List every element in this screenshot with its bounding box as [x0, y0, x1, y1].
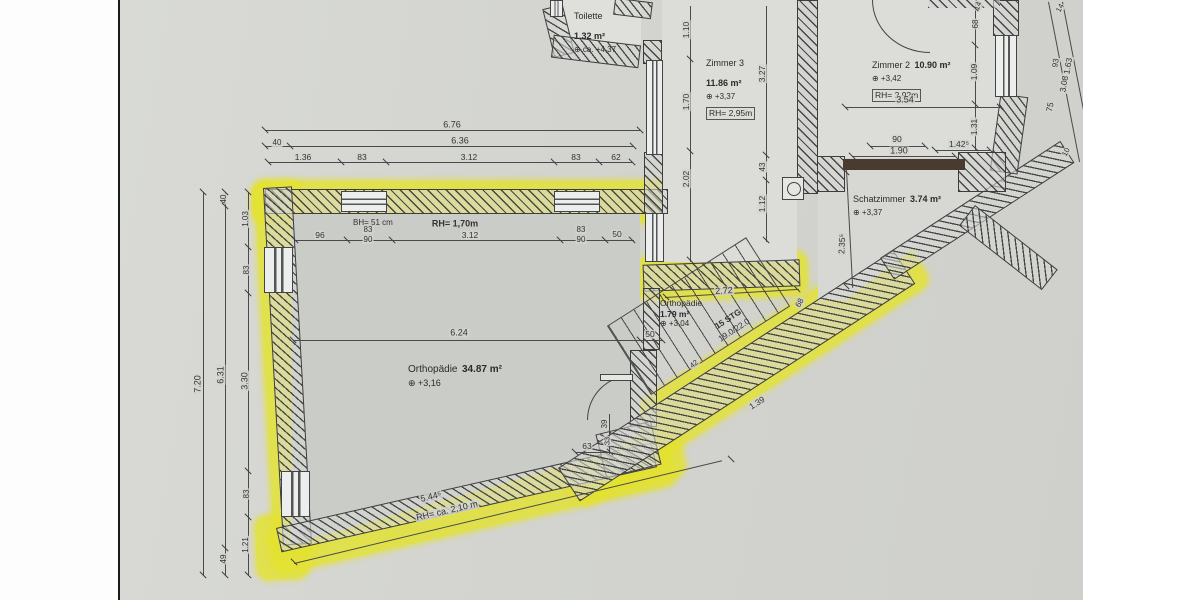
level-marker: ⊕ ca. +4,37 — [574, 45, 616, 55]
zimmer3-floor — [662, 0, 797, 262]
dim-label: 39 — [601, 419, 609, 430]
dim-label: 83 — [570, 153, 581, 162]
level-marker: ⊕ +3,04 — [660, 319, 702, 329]
dim-label: 83 — [243, 265, 251, 276]
level-marker: ⊕ +3,37 — [706, 92, 755, 102]
dim-label: 63 — [581, 442, 592, 451]
dim-label: 43 — [759, 162, 767, 173]
schatzimmer-label: Schatzimmer 3.74 m² ⊕ +3,37 — [853, 188, 941, 218]
room-name: Orthopädie — [408, 364, 457, 375]
zimmer3-label: Zimmer 3 11.86 m² ⊕ +3,37 RH= 2,95m — [706, 52, 755, 122]
wall-zimmer2-bottom-right — [958, 152, 1006, 192]
dim-label: 2.72 — [714, 286, 734, 296]
wall-corridor-window-stub-bottom — [644, 152, 663, 214]
floor-plan-scan: 15 STG 19.0/22.0 Toilette 1.32 m² ⊕ ca. … — [0, 0, 1200, 600]
orthopaedie-main-label: Orthopädie 34.87 m² ⊕ +3,16 — [408, 358, 502, 389]
dim-label: 33 — [603, 436, 611, 446]
toilette-label: Toilette 1.32 m² ⊕ ca. +4,37 — [574, 5, 616, 55]
dim-label: 2.02 — [682, 170, 691, 189]
dim-label: 62 — [610, 153, 621, 162]
washbasin-icon — [782, 177, 804, 200]
room-name: Schatzimmer — [853, 194, 906, 204]
dim-label: 1.21 — [242, 536, 250, 554]
room-area: 3.74 m² — [910, 194, 941, 204]
door-leaf-main-room — [600, 374, 633, 381]
dim-label: 1.10 — [682, 21, 691, 40]
dim-label: 1.70 — [682, 93, 691, 112]
dim-label: 2.35⁵ — [837, 233, 847, 255]
dim-label: 1.12 — [758, 195, 767, 214]
dim-label: 50 — [644, 330, 655, 339]
dim-label: 1.36 — [294, 153, 313, 162]
level-marker: ⊕ +3,37 — [853, 208, 941, 218]
orthopaedie-stair-label: Orthopädie 1.79 m² ⊕ +3,04 — [660, 298, 702, 329]
dim-label: 6.24 — [449, 329, 469, 338]
wall-main-top — [265, 189, 668, 214]
room-height-badge: RH= 2,95m — [706, 107, 755, 120]
window-top-2 — [554, 191, 600, 212]
room-name: Toilette — [574, 11, 603, 21]
room-name: Orthopädie — [660, 298, 702, 308]
dim-label: 6.31 — [217, 365, 226, 385]
window-left-1 — [264, 247, 293, 293]
level-marker: ⊕ +3,16 — [408, 378, 502, 389]
door-threshold-zimmer2 — [843, 159, 965, 170]
wall-zimmer2-top-stub — [928, 0, 1000, 8]
dim-label: 6.76 — [442, 121, 462, 130]
dim-label: 3.27 — [758, 65, 767, 84]
dim-label: 1.31 — [970, 118, 979, 137]
dim-label: 50 — [611, 230, 622, 239]
dim-label: 83 — [576, 226, 587, 234]
window-zimmer2 — [995, 35, 1017, 97]
dim-label: 6.36 — [450, 137, 470, 146]
dim-label: 3.30 — [241, 371, 250, 391]
window-right-upper — [645, 213, 664, 262]
dim-label: 75 — [1045, 101, 1055, 114]
room-area: 1.32 m² — [574, 31, 605, 41]
wall-zimmer2-bottom-left — [817, 156, 845, 192]
dim-label: 7.20 — [194, 374, 203, 394]
window-left-2 — [281, 471, 310, 517]
dim-label: 90 — [891, 135, 902, 144]
scan-margin-right — [1083, 0, 1200, 600]
dim-label: 3.54 — [895, 96, 915, 105]
dim-label: 96 — [314, 231, 325, 240]
window-toilette — [550, 0, 563, 17]
window-height-label: RH= 1,70m — [431, 220, 479, 229]
dim-label: 83 — [363, 226, 374, 234]
scan-margin-left — [0, 0, 118, 600]
dim-label: 40 — [272, 139, 283, 147]
dim-label: 68 — [972, 19, 980, 30]
dim-label: 1.90 — [889, 147, 909, 156]
room-area: 34.87 m² — [462, 364, 502, 375]
dim-label: 83 — [356, 153, 367, 162]
dim-label: 1.03 — [242, 210, 250, 228]
room-area: 11.86 m² — [706, 78, 742, 88]
room-area: 10.90 m² — [914, 60, 950, 70]
window-top-1 — [341, 191, 387, 212]
room-area: 1.79 m² — [660, 309, 689, 319]
window-corridor — [646, 60, 663, 155]
wall-zimmer2-left — [797, 0, 818, 194]
dim-label: 49 — [220, 554, 228, 565]
dim-label: 1.42⁵ — [948, 140, 970, 149]
dim-label: 83 — [243, 489, 251, 500]
dim-label: 3.12 — [460, 153, 479, 162]
dim-label: 90 — [363, 236, 374, 244]
dim-label: 90 — [576, 236, 587, 244]
room-name: Zimmer 3 — [706, 58, 744, 68]
room-name: Zimmer 2 — [872, 60, 910, 70]
dim-label: 1.09 — [970, 63, 979, 82]
level-marker: ⊕ +3,42 — [872, 74, 950, 84]
dim-label: 3.12 — [461, 231, 480, 240]
